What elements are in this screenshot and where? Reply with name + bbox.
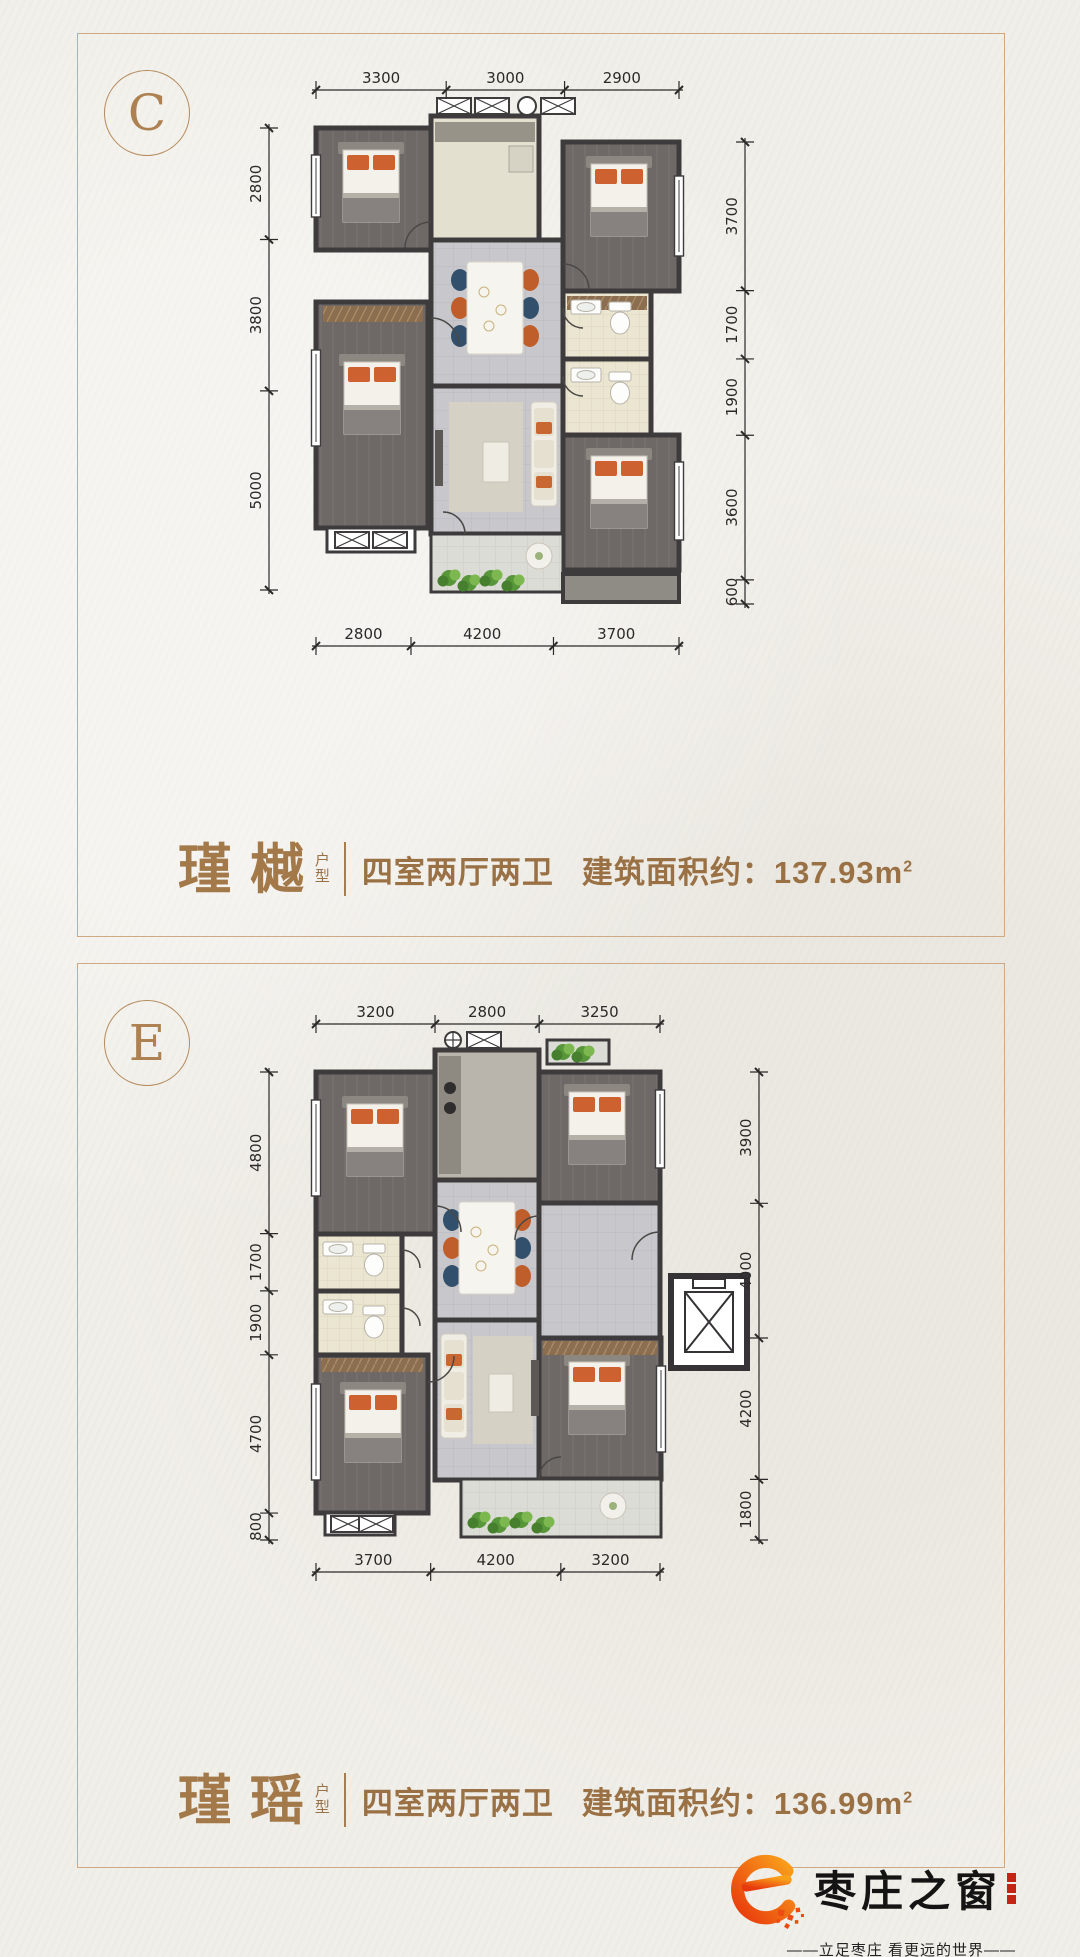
bed (342, 1096, 408, 1176)
dimensions-top: 330030002900 (312, 69, 683, 99)
dim-label: 2800 (468, 1003, 506, 1021)
plan-description: 四室两厅两卫建筑面积约：136.99m2 (362, 1778, 913, 1823)
entry-hall (539, 1203, 660, 1338)
brand-e-logo-icon (720, 1848, 808, 1936)
basin (323, 1242, 353, 1256)
dim-label: 1700 (723, 306, 741, 344)
plan-badge-c: C (104, 70, 190, 156)
plan-caption-c: 瑾樾 户 型 四室两厅两卫建筑面积约：137.93m2 (78, 842, 1004, 896)
dimensions-bottom: 370042003200 (312, 1551, 664, 1581)
dimensions-bottom: 280042003700 (312, 625, 683, 655)
dim-label: 2800 (247, 165, 265, 203)
type-label: 户 型 (315, 1784, 330, 1817)
brand-name: 枣庄之窗 (814, 1871, 1002, 1913)
plan-letter: C (128, 88, 166, 138)
area-label: 建筑面积约： (582, 1786, 774, 1821)
dim-label: 4800 (247, 1134, 265, 1172)
plan-name: 瑾樾 (169, 842, 313, 896)
dim-label: 3200 (356, 1003, 394, 1021)
stove-burner (444, 1102, 456, 1114)
dim-label: 1900 (247, 1304, 265, 1342)
dim-label: 3800 (247, 296, 265, 334)
dimensions-left: 280038005000 (247, 124, 278, 594)
floor-plan-c-svg: 330030002900 280038005000 37001700190036… (111, 50, 971, 690)
floor-plan-e-svg: 320028003250 4800170019004700800 3900400… (111, 980, 971, 1620)
toilet (609, 372, 631, 404)
window-icon (475, 98, 509, 114)
stove-burner (444, 1082, 456, 1094)
bed (564, 1084, 630, 1164)
dim-label: 3250 (580, 1003, 618, 1021)
basin (323, 1300, 353, 1314)
caption-divider (344, 842, 346, 896)
rooms-label: 四室两厅两卫 (362, 855, 554, 890)
patio-table (526, 543, 552, 569)
dim-label: 800 (247, 1512, 265, 1541)
kitchen-counter (435, 122, 535, 142)
window-icon (335, 532, 369, 548)
tv-cabinet (435, 430, 443, 486)
plan-name-char: 樾 (250, 837, 304, 901)
basin (571, 300, 601, 314)
bed (338, 142, 404, 222)
page: C (0, 0, 1080, 1957)
sofa (531, 402, 557, 506)
bed (340, 1382, 406, 1462)
dim-label: 3700 (597, 625, 635, 643)
dim-label: 3600 (723, 488, 741, 526)
dim-label: 1900 (723, 378, 741, 416)
dim-label: 3300 (362, 69, 400, 87)
toilet (363, 1244, 385, 1276)
toilet (609, 302, 631, 334)
dim-label: 3200 (591, 1551, 629, 1569)
window-icon (541, 98, 575, 114)
dim-label: 1700 (247, 1243, 265, 1281)
footer-logo: 枣庄之窗 ——立足枣庄 看更远的世界—— (636, 1848, 1016, 1957)
coffee-table (489, 1374, 513, 1412)
coffee-table (483, 442, 509, 482)
plan-name-char: 瑾 (178, 837, 232, 901)
dim-label: 3900 (737, 1119, 755, 1157)
plan-name: 瑾瑶 (169, 1773, 313, 1827)
window-icon (437, 98, 471, 114)
caption-divider (344, 1773, 346, 1827)
patio-table (600, 1493, 626, 1519)
area-value: 136.99 (774, 1786, 875, 1821)
window-icon (373, 532, 407, 548)
wardrobe (543, 1341, 657, 1355)
area-label: 建筑面积约： (582, 855, 774, 890)
toilet (363, 1306, 385, 1338)
dim-label: 3700 (354, 1551, 392, 1569)
type-label: 户 型 (315, 853, 330, 886)
plan-name-char: 瑾 (178, 1768, 232, 1832)
dim-label: 4200 (737, 1390, 755, 1428)
dimensions-top: 320028003250 (312, 1003, 664, 1033)
seal-mark (1007, 1872, 1016, 1905)
dim-label: 3700 (723, 197, 741, 235)
sofa (441, 1334, 467, 1438)
bed (586, 448, 652, 528)
dim-label: 2900 (603, 69, 641, 87)
elevator (671, 1276, 747, 1368)
window-icon (467, 1032, 501, 1048)
dim-label: 4700 (247, 1415, 265, 1453)
window-icon (359, 1516, 393, 1532)
plan-letter: E (129, 1018, 166, 1068)
dim-label: 4200 (477, 1551, 515, 1569)
bed (586, 156, 652, 236)
wardrobe (323, 306, 423, 322)
dim-label: 5000 (247, 471, 265, 509)
plan-caption-e: 瑾瑶 户 型 四室两厅两卫建筑面积约：136.99m2 (78, 1773, 1004, 1827)
area-value: 137.93 (774, 855, 875, 890)
dimensions-right: 3700170019003600600 (723, 138, 754, 608)
tv-cabinet (531, 1360, 539, 1416)
bed (564, 1354, 630, 1434)
dim-label: 1800 (737, 1491, 755, 1529)
plan-panel-e: E (77, 963, 1005, 1868)
fridge (509, 146, 533, 172)
dimensions-left: 4800170019004700800 (247, 1068, 278, 1544)
dim-label: 4200 (463, 625, 501, 643)
rooms-label: 四室两厅两卫 (362, 1786, 554, 1821)
bed (339, 354, 405, 434)
plan-badge-e: E (104, 1000, 190, 1086)
dim-label: 2800 (344, 625, 382, 643)
dim-label: 3000 (486, 69, 524, 87)
dim-label: 4000 (737, 1252, 755, 1290)
entry-step (563, 574, 679, 602)
dining-table (451, 262, 539, 354)
plan-panel-c: C (77, 33, 1005, 937)
plan-name-char: 瑶 (250, 1768, 304, 1832)
basin (571, 368, 601, 382)
wardrobe (321, 1358, 423, 1372)
round-window-icon (518, 97, 536, 115)
dim-label: 600 (723, 578, 741, 607)
kitchen-counter (439, 1056, 461, 1174)
plan-description: 四室两厅两卫建筑面积约：137.93m2 (362, 847, 913, 892)
brand-tagline: ——立足枣庄 看更远的世界—— (636, 1939, 1016, 1957)
